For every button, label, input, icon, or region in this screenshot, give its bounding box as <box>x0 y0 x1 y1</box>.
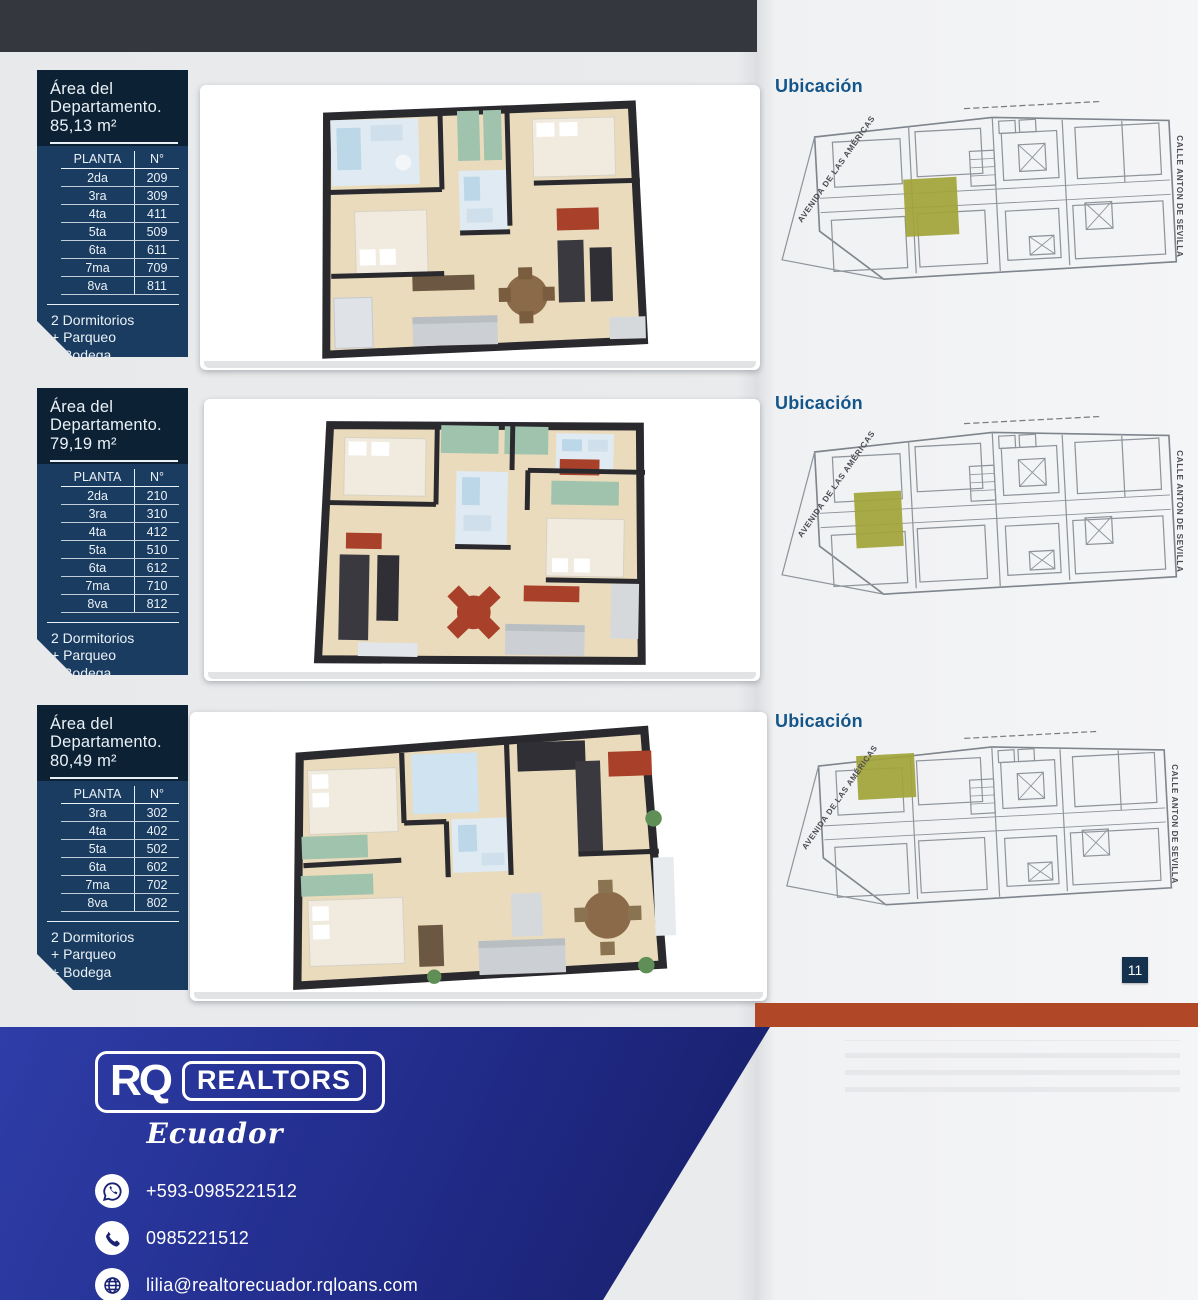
ubicacion-title-2: Ubicación <box>775 393 863 414</box>
logo-realtors-text: REALTORS <box>182 1061 366 1101</box>
area-info-card-2: Área del Departamento. 79,19 m² PLANTA N… <box>37 388 188 675</box>
street-label-left: AVENIDA DE LAS AMÉRICAS <box>795 114 877 225</box>
contact-list: +593-0985221512 0985221512 <box>95 1174 418 1300</box>
floor-plan-render-2 <box>209 404 755 676</box>
location-plan-2: AVENIDA DE LAS AMÉRICAS CALLE ANTON DE S… <box>758 413 1190 618</box>
phone-icon <box>95 1221 129 1255</box>
divider <box>50 142 178 144</box>
features-list-2: 2 Dormitorios + Parqueo + Bodega <box>47 622 179 681</box>
highlighted-unit <box>903 177 959 237</box>
street-label-right: CALLE ANTON DE SEVILLA <box>1175 450 1184 572</box>
table-row: 5ta510 <box>61 541 179 559</box>
floor-plan-render-1 <box>205 90 755 365</box>
divider <box>50 460 178 462</box>
floor-plan-card-3 <box>190 712 767 1001</box>
plant-table-1: PLANTA N° 2da209 3ra309 4ta411 5ta509 6t… <box>37 146 188 387</box>
location-plan-1: AVENIDA DE LAS AMÉRICAS CALLE ANTON DE S… <box>758 98 1190 303</box>
table-row: 6ta611 <box>61 241 179 259</box>
table-row: 8va811 <box>61 277 179 295</box>
area-info-card-3: Área del Departamento. 80,49 m² PLANTA N… <box>37 705 188 990</box>
area-value: 85,13 m² <box>50 117 180 135</box>
plant-table-2: PLANTA N° 2da210 3ra310 4ta412 5ta510 6t… <box>37 464 188 705</box>
area-value: 79,19 m² <box>50 435 180 453</box>
table-row: 2da210 <box>61 487 179 505</box>
table-row: 4ta412 <box>61 523 179 541</box>
page-number-badge: 11 <box>1122 957 1148 983</box>
street-label-right: CALLE ANTON DE SEVILLA <box>1170 764 1179 883</box>
contact-phone[interactable]: 0985221512 <box>95 1221 418 1255</box>
ubicacion-title-1: Ubicación <box>775 76 863 97</box>
logo-country-text: Ecuador <box>95 1117 335 1150</box>
logo-rq-text: RQ <box>110 1059 170 1103</box>
table-row: 6ta602 <box>61 858 179 876</box>
col-header-n: N° <box>135 151 180 169</box>
area-title-line1: Área del <box>50 80 180 98</box>
col-header-planta: PLANTA <box>61 151 135 169</box>
features-list-3: 2 Dormitorios + Parqueo + Bodega <box>47 921 179 980</box>
contact-whatsapp[interactable]: +593-0985221512 <box>95 1174 418 1208</box>
table-row: 6ta612 <box>61 559 179 577</box>
floor-plan-card-2 <box>204 399 760 681</box>
table-row: 7ma709 <box>61 259 179 277</box>
location-plan-3: AVENIDA DE LAS AMÉRICAS CALLE ANTON DE S… <box>758 728 1190 928</box>
rq-realtors-logo: RQ REALTORS <box>95 1051 385 1113</box>
area-title-line2: Departamento. <box>50 98 180 116</box>
contact-whatsapp-number: +593-0985221512 <box>146 1181 297 1202</box>
floor-plan-render-3 <box>195 717 762 996</box>
street-label-right: CALLE ANTON DE SEVILLA <box>1175 135 1184 257</box>
area-title-2: Área del Departamento. 79,19 m² <box>37 388 188 464</box>
contact-phone-number: 0985221512 <box>146 1228 249 1249</box>
whatsapp-icon <box>95 1174 129 1208</box>
table-row: 4ta402 <box>61 822 179 840</box>
area-info-card-1: Área del Departamento. 85,13 m² PLANTA N… <box>37 70 188 357</box>
area-title-3: Área del Departamento. 80,49 m² <box>37 705 188 781</box>
area-value: 80,49 m² <box>50 752 180 770</box>
plant-table-3: PLANTA N° 3ra302 4ta402 5ta502 6ta602 7m… <box>37 781 188 1004</box>
table-row: 8va802 <box>61 894 179 912</box>
table-row: 3ra302 <box>61 804 179 822</box>
table-row: 3ra310 <box>61 505 179 523</box>
features-list-1: 2 Dormitorios + Parqueo + Bodega <box>47 304 179 363</box>
table-row: 7ma710 <box>61 577 179 595</box>
contact-email[interactable]: lilia@realtorecuador.rqloans.com <box>95 1268 418 1300</box>
highlighted-unit <box>854 491 904 549</box>
area-title-1: Área del Departamento. 85,13 m² <box>37 70 188 146</box>
table-row: 5ta502 <box>61 840 179 858</box>
globe-icon <box>95 1268 129 1300</box>
table-row: 4ta411 <box>61 205 179 223</box>
table-row: 8va812 <box>61 595 179 613</box>
table-row: 3ra309 <box>61 187 179 205</box>
divider <box>50 777 178 779</box>
background-texture <box>845 1040 1180 1092</box>
orange-accent-bar <box>755 1003 1198 1027</box>
top-dark-bar <box>0 0 757 52</box>
contact-email-address: lilia@realtorecuador.rqloans.com <box>146 1275 418 1296</box>
floor-plan-card-1 <box>200 85 760 370</box>
table-row: 2da209 <box>61 169 179 187</box>
brochure-page: Área del Departamento. 85,13 m² PLANTA N… <box>0 0 1198 1300</box>
table-row: 7ma702 <box>61 876 179 894</box>
table-row: 5ta509 <box>61 223 179 241</box>
